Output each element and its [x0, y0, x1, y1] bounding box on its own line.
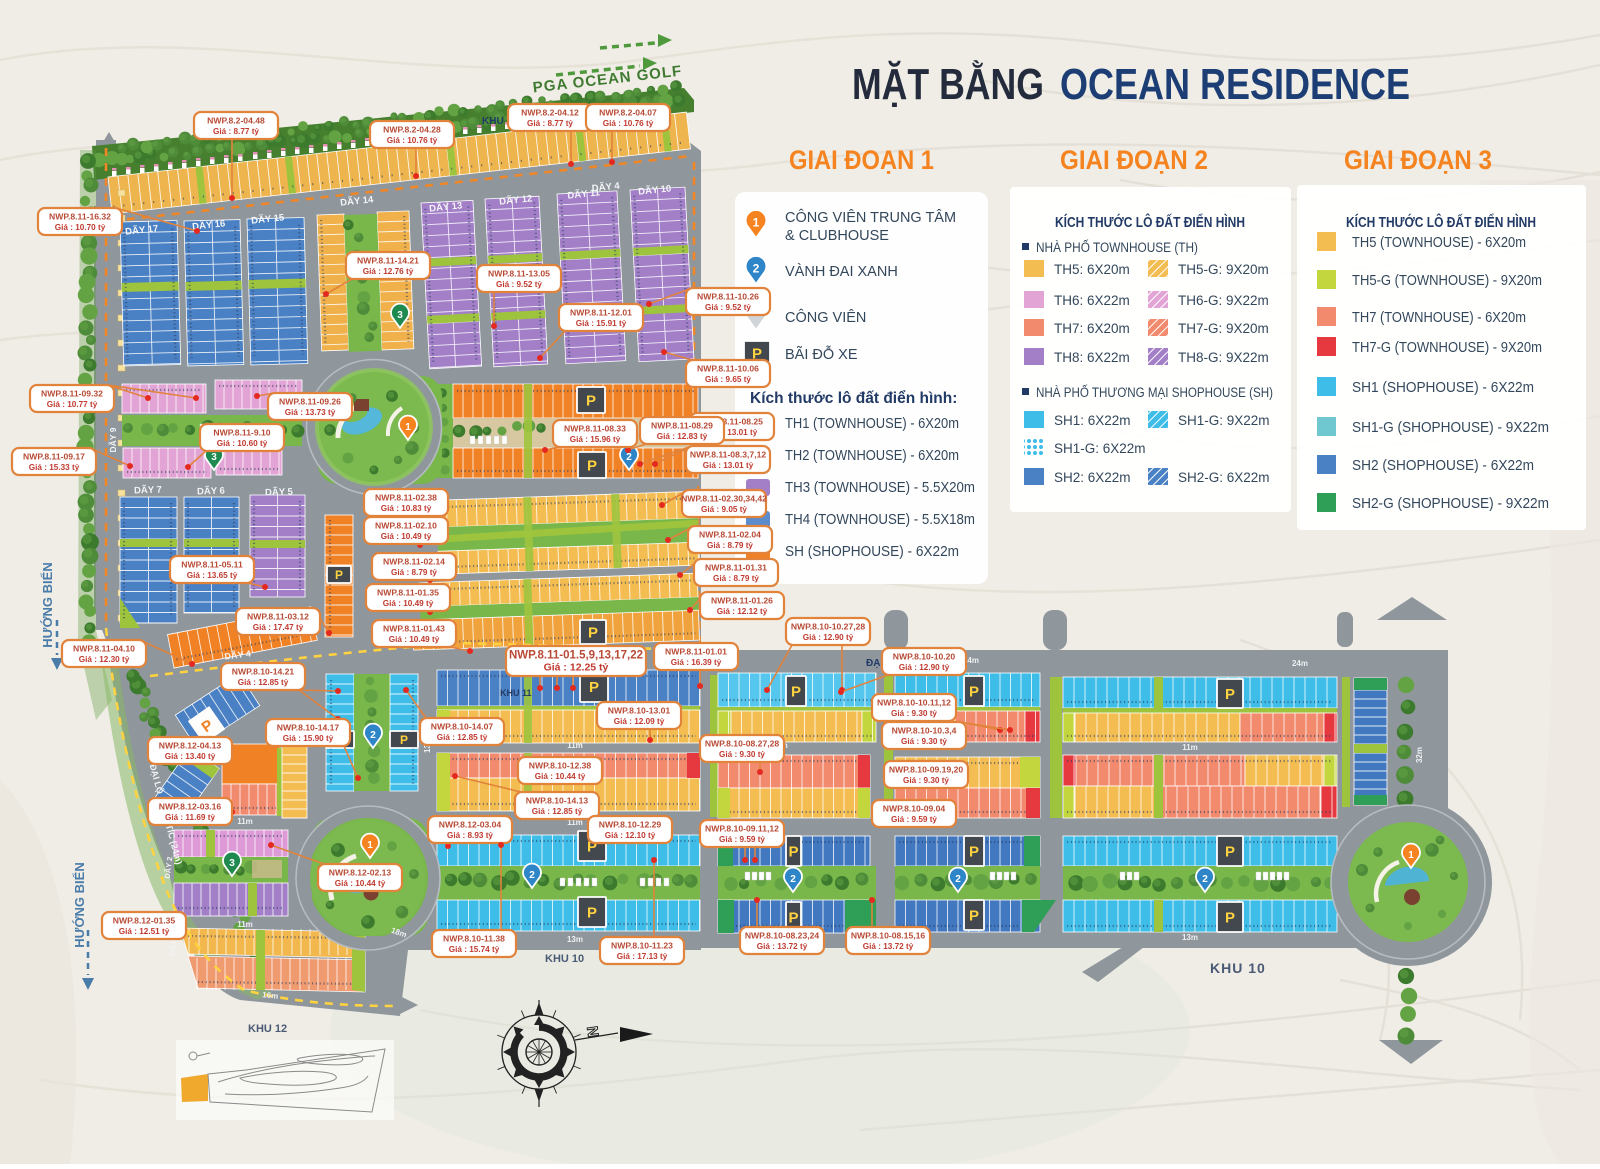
svg-text:NWP.8.11-02.10: NWP.8.11-02.10	[375, 520, 437, 530]
svg-text:Giá : 8.79 tỷ: Giá : 8.79 tỷ	[391, 568, 437, 577]
svg-text:NWP.8.11-01.01: NWP.8.11-01.01	[665, 646, 727, 656]
svg-text:Giá : 12.25 tỷ: Giá : 12.25 tỷ	[544, 662, 609, 674]
svg-text:NWP.8.10-10.27,28: NWP.8.10-10.27,28	[791, 621, 866, 631]
svg-text:NWP.8.11-12.01: NWP.8.11-12.01	[570, 307, 632, 317]
svg-text:TH3 (TOWNHOUSE) - 5.5X20m: TH3 (TOWNHOUSE) - 5.5X20m	[785, 480, 975, 496]
svg-text:NWP.8.10-09.04: NWP.8.10-09.04	[883, 803, 946, 813]
svg-text:Giá : 13.01 tỷ: Giá : 13.01 tỷ	[703, 461, 754, 470]
svg-text:NWP.8.10-09.19,20: NWP.8.10-09.19,20	[889, 764, 964, 774]
svg-text:SH (SHOPHOUSE) - 6X22m: SH (SHOPHOUSE) - 6X22m	[785, 544, 959, 560]
svg-text:24m: 24m	[1292, 659, 1308, 668]
svg-text:NWP.8.11-16.32: NWP.8.11-16.32	[49, 211, 111, 221]
svg-text:NWP.8.11-09.26: NWP.8.11-09.26	[279, 396, 341, 406]
svg-text:NWP.8.12-03.16: NWP.8.12-03.16	[159, 801, 222, 811]
svg-text:Giá : 15.96 tỷ: Giá : 15.96 tỷ	[570, 435, 621, 444]
svg-text:Kích thước lô đất điển hình:: Kích thước lô đất điển hình:	[750, 390, 957, 407]
svg-text:2: 2	[529, 870, 535, 881]
svg-text:DÃY 6: DÃY 6	[197, 486, 225, 498]
svg-text:NWP.8.12-03.04: NWP.8.12-03.04	[439, 819, 502, 829]
svg-text:13m: 13m	[1182, 933, 1198, 942]
svg-text:Giá : 8.79 tỷ: Giá : 8.79 tỷ	[713, 574, 759, 583]
svg-text:P: P	[969, 907, 979, 924]
svg-text:P: P	[587, 457, 597, 474]
svg-text:Giá : 9.52 tỷ: Giá : 9.52 tỷ	[705, 303, 751, 312]
svg-text:NWP.8.12-02.13: NWP.8.12-02.13	[329, 867, 392, 877]
svg-text:Giá : 9.30 tỷ: Giá : 9.30 tỷ	[901, 737, 947, 746]
svg-text:TH1 (TOWNHOUSE) - 6X20m: TH1 (TOWNHOUSE) - 6X20m	[785, 416, 959, 432]
svg-text:NWP.8.11-04.10: NWP.8.11-04.10	[73, 643, 135, 653]
svg-text:TH7-G: 9X20m: TH7-G: 9X20m	[1178, 321, 1269, 336]
svg-text:3: 3	[229, 858, 235, 869]
svg-text:NWP.8.11-02.38: NWP.8.11-02.38	[375, 492, 437, 502]
svg-text:SH2-G (SHOPHOUSE) - 9X22m: SH2-G (SHOPHOUSE) - 9X22m	[1352, 496, 1549, 512]
svg-text:SH2: 6X22m: SH2: 6X22m	[1054, 470, 1131, 485]
svg-text:DÃY 9: DÃY 9	[108, 427, 118, 452]
svg-text:KHU 11: KHU 11	[500, 688, 532, 698]
svg-text:P: P	[400, 733, 408, 747]
svg-text:P: P	[588, 624, 598, 641]
svg-text:Giá : 10.83 tỷ: Giá : 10.83 tỷ	[381, 504, 432, 513]
svg-text:Giá : 12.83 tỷ: Giá : 12.83 tỷ	[657, 432, 708, 441]
svg-text:Giá : 8.77 tỷ: Giá : 8.77 tỷ	[527, 119, 573, 128]
svg-text:Giá : 13.40 tỷ: Giá : 13.40 tỷ	[165, 752, 216, 761]
svg-text:DÃY 7: DÃY 7	[134, 485, 162, 497]
svg-text:OCEAN RESIDENCE: OCEAN RESIDENCE	[1060, 60, 1410, 109]
svg-text:Giá : 12.30 tỷ: Giá : 12.30 tỷ	[79, 655, 130, 664]
svg-text:NWP.8.12-04.13: NWP.8.12-04.13	[159, 740, 222, 750]
svg-text:TH8-G: 9X22m: TH8-G: 9X22m	[1178, 350, 1269, 365]
svg-text:NWP.8.11-9.10: NWP.8.11-9.10	[213, 427, 270, 437]
svg-text:MẶT BẰNG: MẶT BẰNG	[852, 59, 1044, 109]
svg-text:& CLUBHOUSE: & CLUBHOUSE	[785, 228, 889, 244]
svg-text:Giá : 10.77 tỷ: Giá : 10.77 tỷ	[47, 400, 98, 409]
svg-text:Giá : 12.09 tỷ: Giá : 12.09 tỷ	[614, 717, 665, 726]
svg-text:P: P	[791, 683, 801, 700]
svg-text:NWP.8.2-04.48: NWP.8.2-04.48	[207, 115, 265, 125]
svg-text:CÔNG VIÊN: CÔNG VIÊN	[785, 309, 866, 326]
svg-text:Giá : 12.85 tỷ: Giá : 12.85 tỷ	[238, 678, 289, 687]
svg-text:Giá : 10.60 tỷ: Giá : 10.60 tỷ	[217, 439, 268, 448]
svg-text:11m: 11m	[1182, 743, 1198, 752]
svg-text:2: 2	[370, 730, 376, 741]
svg-text:Giá : 15.90 tỷ: Giá : 15.90 tỷ	[283, 734, 334, 743]
svg-text:P: P	[589, 679, 599, 696]
svg-text:NWP.8.10-10.3,4: NWP.8.10-10.3,4	[892, 725, 957, 735]
svg-text:Giá : 12.10 tỷ: Giá : 12.10 tỷ	[605, 831, 656, 840]
svg-text:Giá : 12.12 tỷ: Giá : 12.12 tỷ	[717, 607, 768, 616]
svg-text:Giá : 10.44 tỷ: Giá : 10.44 tỷ	[335, 879, 386, 888]
svg-text:3: 3	[397, 310, 403, 321]
svg-text:Giá : 9.30 tỷ: Giá : 9.30 tỷ	[719, 750, 765, 759]
svg-text:2: 2	[955, 874, 961, 885]
svg-text:P: P	[335, 568, 343, 582]
svg-text:1: 1	[405, 422, 411, 433]
svg-text:NWP.8.11-02.14: NWP.8.11-02.14	[383, 556, 445, 566]
svg-text:11m: 11m	[237, 920, 253, 929]
svg-text:NWP.8.11-08.33: NWP.8.11-08.33	[564, 423, 626, 433]
svg-text:NWP.8.11-01.31: NWP.8.11-01.31	[705, 562, 767, 572]
svg-text:1: 1	[753, 216, 760, 230]
svg-text:BÃI ĐỖ XE: BÃI ĐỖ XE	[785, 345, 858, 363]
svg-text:Giá : 12.76 tỷ: Giá : 12.76 tỷ	[363, 267, 414, 276]
svg-text:1: 1	[367, 840, 373, 851]
svg-text:P: P	[1225, 909, 1235, 926]
svg-text:KHU 12: KHU 12	[248, 1023, 287, 1035]
svg-text:11m: 11m	[567, 741, 583, 750]
svg-text:Giá : 10.44 tỷ: Giá : 10.44 tỷ	[535, 772, 586, 781]
svg-text:Giá : 17.47 tỷ: Giá : 17.47 tỷ	[253, 623, 304, 632]
svg-text:NWP.8.2-04.12: NWP.8.2-04.12	[521, 107, 579, 117]
svg-text:TH5-G (TOWNHOUSE) - 9X20m: TH5-G (TOWNHOUSE) - 9X20m	[1352, 273, 1542, 289]
svg-text:Giá : 9.05 tỷ: Giá : 9.05 tỷ	[701, 505, 747, 514]
svg-text:KÍCH THƯỚC LÔ ĐẤT ĐIỂN HÌNH: KÍCH THƯỚC LÔ ĐẤT ĐIỂN HÌNH	[1346, 213, 1536, 231]
svg-text:Giá : 9.30 tỷ: Giá : 9.30 tỷ	[903, 776, 949, 785]
svg-text:TH7 (TOWNHOUSE) - 6X20m: TH7 (TOWNHOUSE) - 6X20m	[1352, 310, 1526, 326]
svg-text:Giá : 9.59 tỷ: Giá : 9.59 tỷ	[891, 815, 937, 824]
svg-text:Giá : 12.90 tỷ: Giá : 12.90 tỷ	[899, 663, 950, 672]
svg-text:Giá : 13.72 tỷ: Giá : 13.72 tỷ	[863, 942, 914, 951]
svg-text:TH6: 6X22m: TH6: 6X22m	[1054, 293, 1130, 308]
svg-text:NWP.8.10-08.23,24: NWP.8.10-08.23,24	[745, 930, 820, 940]
svg-text:NWP.8.10-14.13: NWP.8.10-14.13	[526, 795, 589, 805]
svg-text:NWP.8.11-03.12: NWP.8.11-03.12	[247, 611, 309, 621]
svg-text:Giá : 9.65 tỷ: Giá : 9.65 tỷ	[705, 375, 751, 384]
svg-text:2: 2	[753, 262, 760, 276]
svg-text:NWP.8.10-11.38: NWP.8.10-11.38	[443, 933, 505, 943]
svg-text:HƯỚNG BIỂN: HƯỚNG BIỂN	[72, 862, 87, 947]
svg-text:TH4 (TOWNHOUSE) - 5.5X18m: TH4 (TOWNHOUSE) - 5.5X18m	[785, 512, 975, 528]
svg-text:SH1-G: 9X22m: SH1-G: 9X22m	[1178, 413, 1270, 428]
svg-text:TH7: 6X20m: TH7: 6X20m	[1054, 321, 1130, 336]
svg-text:NWP.8.10-13.01: NWP.8.10-13.01	[608, 705, 671, 715]
svg-text:P: P	[1225, 843, 1235, 860]
svg-text:P: P	[969, 683, 979, 700]
svg-text:Giá : 12.85 tỷ: Giá : 12.85 tỷ	[532, 807, 583, 816]
svg-text:NWP.8.10-10.20: NWP.8.10-10.20	[893, 651, 956, 661]
svg-text:Giá : 9.52 tỷ: Giá : 9.52 tỷ	[496, 280, 542, 289]
svg-text:TH8: 6X22m: TH8: 6X22m	[1054, 350, 1130, 365]
svg-text:SH1 (SHOPHOUSE) - 6X22m: SH1 (SHOPHOUSE) - 6X22m	[1352, 380, 1534, 396]
svg-text:NWP.8.11-10.06: NWP.8.11-10.06	[697, 363, 759, 373]
svg-text:TH5 (TOWNHOUSE) - 6X20m: TH5 (TOWNHOUSE) - 6X20m	[1352, 235, 1526, 251]
svg-text:Giá : 9.59 tỷ: Giá : 9.59 tỷ	[719, 835, 765, 844]
svg-text:NWP.8.11-13.05: NWP.8.11-13.05	[488, 268, 550, 278]
svg-text:Giá : 10.76 tỷ: Giá : 10.76 tỷ	[387, 136, 438, 145]
svg-text:VÀNH ĐAI XANH: VÀNH ĐAI XANH	[785, 263, 898, 280]
svg-text:P: P	[788, 909, 798, 926]
svg-text:Giá : 13.72 tỷ: Giá : 13.72 tỷ	[757, 942, 808, 951]
svg-text:P: P	[586, 392, 596, 409]
svg-text:Giá : 9.30 tỷ: Giá : 9.30 tỷ	[891, 709, 937, 718]
svg-text:TH7-G (TOWNHOUSE) - 9X20m: TH7-G (TOWNHOUSE) - 9X20m	[1352, 340, 1542, 356]
svg-text:Giá : 12.85 tỷ: Giá : 12.85 tỷ	[437, 733, 488, 742]
svg-text:NWP.8.12-01.35: NWP.8.12-01.35	[113, 915, 176, 925]
svg-text:11m: 11m	[237, 817, 253, 826]
svg-text:NWP.8.10-10.11,12: NWP.8.10-10.11,12	[877, 697, 951, 707]
svg-text:GIAI ĐOẠN 2: GIAI ĐOẠN 2	[1060, 145, 1208, 175]
svg-text:Giá : 16.39 tỷ: Giá : 16.39 tỷ	[671, 658, 722, 667]
svg-text:Giá : 8.79 tỷ: Giá : 8.79 tỷ	[707, 541, 753, 550]
svg-text:NWP.8.2-04.07: NWP.8.2-04.07	[599, 107, 657, 117]
svg-text:Giá : 8.93 tỷ: Giá : 8.93 tỷ	[447, 831, 493, 840]
svg-text:P: P	[788, 843, 798, 860]
svg-text:NWP.8.10-12.29: NWP.8.10-12.29	[599, 819, 662, 829]
svg-text:1: 1	[1408, 850, 1414, 861]
svg-text:NWP.8.11-08.3,7,12: NWP.8.11-08.3,7,12	[690, 449, 767, 459]
svg-text:TH5: 6X20m: TH5: 6X20m	[1054, 262, 1130, 277]
svg-text:Giá : 10.76 tỷ: Giá : 10.76 tỷ	[603, 119, 654, 128]
svg-text:SH1-G: 6X22m: SH1-G: 6X22m	[1054, 441, 1146, 456]
svg-text:16m: 16m	[262, 990, 279, 1001]
svg-text:SH1: 6X22m: SH1: 6X22m	[1054, 413, 1131, 428]
svg-text:NWP.8.11-14.21: NWP.8.11-14.21	[357, 255, 419, 265]
svg-text:NWP.8.11-01.35: NWP.8.11-01.35	[377, 587, 439, 597]
svg-text:NWP.8.10-11.23: NWP.8.10-11.23	[611, 940, 673, 950]
svg-text:Giá : 10.49 tỷ: Giá : 10.49 tỷ	[383, 599, 434, 608]
svg-text:P: P	[969, 843, 979, 860]
svg-text:Giá : 15.33 tỷ: Giá : 15.33 tỷ	[29, 463, 80, 472]
svg-text:NWP.8.10-12.38: NWP.8.10-12.38	[529, 760, 592, 770]
svg-text:NWP.8.11-01.5,9,13,17,22: NWP.8.11-01.5,9,13,17,22	[509, 650, 643, 662]
svg-text:3: 3	[211, 452, 217, 463]
svg-text:GIAI ĐOẠN 3: GIAI ĐOẠN 3	[1344, 145, 1492, 175]
svg-text:KÍCH THƯỚC LÔ ĐẤT ĐIỂN HÌNH: KÍCH THƯỚC LÔ ĐẤT ĐIỂN HÌNH	[1055, 213, 1245, 231]
svg-text:TH6-G: 9X22m: TH6-G: 9X22m	[1178, 293, 1269, 308]
svg-text:Giá : 17.13 tỷ: Giá : 17.13 tỷ	[617, 952, 668, 961]
svg-text:Giá : 15.74 tỷ: Giá : 15.74 tỷ	[449, 945, 500, 954]
svg-text:NWP.8.10-14.07: NWP.8.10-14.07	[431, 721, 494, 731]
svg-text:32m: 32m	[1415, 747, 1424, 763]
svg-text:KHU 10: KHU 10	[545, 953, 584, 965]
svg-text:Giá : 13.65 tỷ: Giá : 13.65 tỷ	[187, 571, 238, 580]
svg-text:Giá : 12.90 tỷ: Giá : 12.90 tỷ	[803, 633, 854, 642]
svg-text:NHÀ PHỐ THƯƠNG MẠI SHOPHOUSE (: NHÀ PHỐ THƯƠNG MẠI SHOPHOUSE (SH)	[1036, 385, 1273, 400]
svg-text:NWP.8.10-14.21: NWP.8.10-14.21	[232, 666, 295, 676]
svg-text:Giá : 10.70 tỷ: Giá : 10.70 tỷ	[55, 223, 106, 232]
svg-text:NWP.8.10-08.15,16: NWP.8.10-08.15,16	[851, 930, 926, 940]
svg-text:2: 2	[790, 874, 796, 885]
svg-text:NWP.8.11-05.11: NWP.8.11-05.11	[181, 559, 243, 569]
svg-text:NWP.8.11-01.43: NWP.8.11-01.43	[383, 623, 445, 633]
svg-text:P: P	[587, 904, 597, 921]
svg-text:NWP.8.11-10.26: NWP.8.11-10.26	[697, 291, 759, 301]
svg-text:SH2 (SHOPHOUSE) - 6X22m: SH2 (SHOPHOUSE) - 6X22m	[1352, 458, 1534, 474]
svg-text:SH1-G (SHOPHOUSE) - 9X22m: SH1-G (SHOPHOUSE) - 9X22m	[1352, 420, 1549, 436]
svg-text:Giá : 11.69 tỷ: Giá : 11.69 tỷ	[165, 813, 216, 822]
svg-text:NHÀ PHỐ TOWNHOUSE (TH): NHÀ PHỐ TOWNHOUSE (TH)	[1036, 240, 1198, 255]
svg-text:NWP.8.11-01.26: NWP.8.11-01.26	[711, 595, 773, 605]
svg-text:2: 2	[1202, 874, 1208, 885]
svg-text:13m: 13m	[567, 935, 583, 944]
svg-text:NWP.8.11-09.17: NWP.8.11-09.17	[23, 451, 85, 461]
svg-text:NWP.8.11-08.29: NWP.8.11-08.29	[651, 420, 713, 430]
svg-text:GIAI ĐOẠN 1: GIAI ĐOẠN 1	[789, 145, 934, 175]
svg-text:SH2-G: 6X22m: SH2-G: 6X22m	[1178, 470, 1270, 485]
svg-text:NWP.8.10-09.11,12: NWP.8.10-09.11,12	[705, 823, 779, 833]
svg-text:NWP.8.11-02.04: NWP.8.11-02.04	[699, 529, 761, 539]
svg-text:NWP.8.10-14.17: NWP.8.10-14.17	[277, 722, 340, 732]
svg-text:NWP.8.10-08.27,28: NWP.8.10-08.27,28	[705, 738, 780, 748]
svg-text:TH5-G: 9X20m: TH5-G: 9X20m	[1178, 262, 1269, 277]
svg-text:P: P	[1225, 686, 1235, 703]
svg-text:NWP.8.2-04.28: NWP.8.2-04.28	[383, 124, 441, 134]
svg-text:NWP.8.11-02.30,34,42: NWP.8.11-02.30,34,42	[681, 493, 767, 503]
svg-text:Giá : 12.51 tỷ: Giá : 12.51 tỷ	[119, 927, 170, 936]
svg-text:Giá : 15.91 tỷ: Giá : 15.91 tỷ	[576, 319, 627, 328]
svg-text:HƯỚNG BIỂN: HƯỚNG BIỂN	[40, 562, 55, 647]
svg-text:NWP.8.11-09.32: NWP.8.11-09.32	[41, 388, 103, 398]
svg-text:2: 2	[626, 452, 632, 463]
svg-text:TH2 (TOWNHOUSE) - 6X20m: TH2 (TOWNHOUSE) - 6X20m	[785, 448, 959, 464]
svg-text:KHU 10: KHU 10	[1210, 960, 1266, 976]
svg-text:CÔNG VIÊN TRUNG TÂM: CÔNG VIÊN TRUNG TÂM	[785, 209, 956, 226]
svg-text:Giá : 8.77 tỷ: Giá : 8.77 tỷ	[213, 127, 259, 136]
svg-text:Giá : 13.73 tỷ: Giá : 13.73 tỷ	[285, 408, 336, 417]
svg-text:Giá : 10.49 tỷ: Giá : 10.49 tỷ	[389, 635, 440, 644]
svg-text:Giá : 10.49 tỷ: Giá : 10.49 tỷ	[381, 532, 432, 541]
